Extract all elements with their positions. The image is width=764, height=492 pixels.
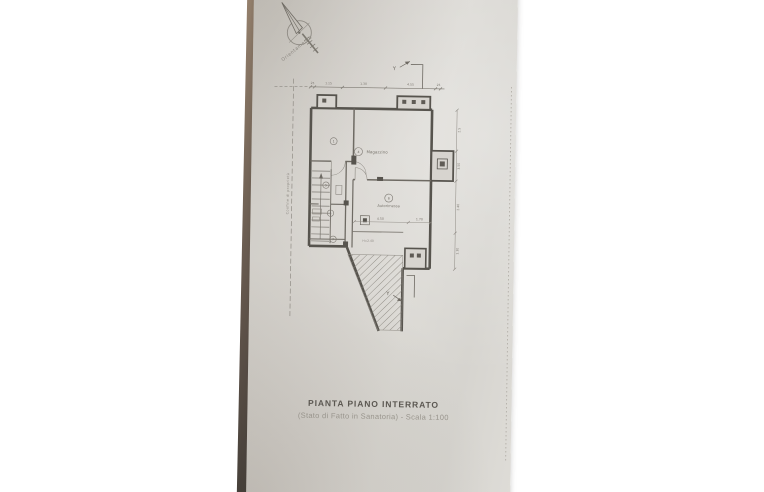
light-well-boxes — [315, 95, 455, 269]
section-marker-top-label: Y — [392, 66, 397, 72]
dim-top-2: 1.30 — [360, 82, 367, 86]
room-magazzino-label: Magazzino — [366, 149, 388, 154]
drawing-sheet: Orientamento Confine di proprietà 25 1.1… — [246, 0, 518, 492]
room-6-number: 6 — [330, 211, 332, 215]
room-5-number: 5 — [325, 183, 327, 187]
dim-room-1: 1.70 — [416, 217, 423, 221]
room-autorimessa-label: Autorimessa — [377, 204, 400, 208]
room-7-number: 7 — [332, 237, 334, 241]
dim-top-0: 25 — [311, 81, 315, 85]
dim-right-0: 2.5 — [457, 128, 461, 133]
room-autorimessa-number: 8 — [388, 196, 390, 200]
staircase — [311, 169, 331, 243]
sheet-fold-line — [506, 87, 512, 462]
room-1-number: 1 — [333, 140, 335, 144]
property-boundary-line — [290, 79, 294, 319]
dim-room-0: 4.50 — [377, 217, 384, 221]
room-magazzino-number: 4 — [357, 150, 359, 154]
dim-right-1: 3.50 — [457, 163, 461, 170]
door-swings — [331, 161, 367, 180]
driveway-ramp-hatch — [347, 254, 403, 330]
dim-right-2: 2.40 — [456, 204, 460, 211]
dim-right-3: 1.30 — [455, 248, 459, 255]
compass-caption: Orientamento — [280, 34, 313, 63]
photographed-drawing: Orientamento Confine di proprietà 25 1.1… — [0, 0, 764, 492]
height-note: H=2.40 — [362, 239, 374, 243]
dim-top-1: 1.15 — [325, 81, 332, 85]
dim-top-4: 25 — [437, 83, 441, 87]
dim-top-3: 4.55 — [407, 83, 414, 87]
room-labels: 1 4 Magazzino 8 Autorimessa 5 6 7 — [322, 138, 401, 244]
boundary-annotation: Confine di proprietà — [285, 173, 290, 215]
